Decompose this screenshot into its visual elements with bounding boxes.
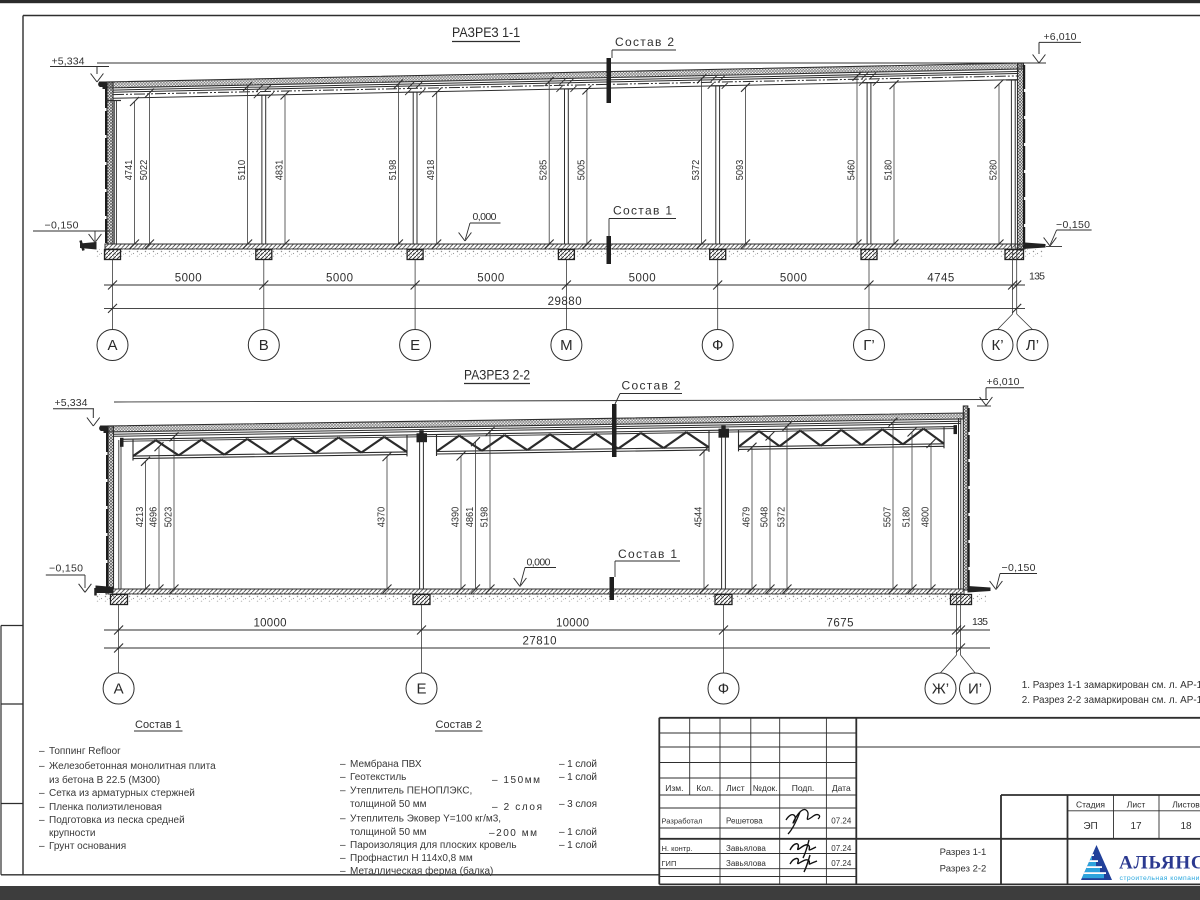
svg-text:– 1 слой: – 1 слой xyxy=(559,840,597,851)
svg-text:– 3 слоя: – 3 слоя xyxy=(559,799,597,810)
svg-text:Стадия: Стадия xyxy=(1076,800,1105,810)
svg-text:−0,150: −0,150 xyxy=(1056,219,1090,231)
svg-text:5180: 5180 xyxy=(902,506,913,527)
svg-text:5280: 5280 xyxy=(989,159,1000,180)
svg-text:5048: 5048 xyxy=(760,506,771,527)
svg-text:135: 135 xyxy=(972,616,988,628)
svg-text:А: А xyxy=(107,337,117,354)
svg-text:5198: 5198 xyxy=(480,506,491,527)
svg-text:4696: 4696 xyxy=(149,506,160,527)
svg-text:Подготовка из песка средней: Подготовка из песка средней xyxy=(49,815,185,826)
svg-text:№док.: №док. xyxy=(753,783,778,793)
svg-text:Состав 2: Состав 2 xyxy=(436,719,482,731)
svg-text:Ж’: Ж’ xyxy=(932,681,949,698)
svg-text:5022: 5022 xyxy=(139,159,150,180)
svg-text:Ф: Ф xyxy=(718,681,729,698)
svg-text:–: – xyxy=(340,866,346,877)
svg-text:–: – xyxy=(340,853,346,864)
svg-text:–: – xyxy=(340,814,346,825)
svg-text:5093: 5093 xyxy=(735,159,746,180)
svg-text:Сетка из арматурных стержней: Сетка из арматурных стержней xyxy=(49,788,195,799)
svg-text:–: – xyxy=(39,746,45,757)
svg-text:РАЗРЕЗ 2-2: РАЗРЕЗ 2-2 xyxy=(464,368,530,383)
svg-text:ГИП: ГИП xyxy=(662,859,677,868)
svg-text:Завьялова: Завьялова xyxy=(726,844,766,853)
svg-text:1. Разрез 1-1 замаркирован см.: 1. Разрез 1-1 замаркирован см. л. АР-19 xyxy=(1022,679,1200,691)
svg-text:АЛЬЯНС: АЛЬЯНС xyxy=(1119,853,1200,874)
svg-text:4679: 4679 xyxy=(742,506,753,527)
svg-text:18: 18 xyxy=(1180,821,1192,832)
svg-text:–: – xyxy=(340,759,346,770)
svg-text:4370: 4370 xyxy=(377,506,388,527)
svg-text:Е: Е xyxy=(410,337,420,354)
svg-text:5372: 5372 xyxy=(777,506,788,527)
svg-text:5507: 5507 xyxy=(883,506,894,527)
svg-text:135: 135 xyxy=(1029,271,1045,283)
svg-text:Состав 1: Состав 1 xyxy=(135,719,181,731)
svg-text:5180: 5180 xyxy=(884,159,895,180)
svg-text:4831: 4831 xyxy=(275,159,286,180)
svg-text:−0,150: −0,150 xyxy=(49,563,83,575)
svg-text:И’: И’ xyxy=(968,681,982,698)
svg-text:М: М xyxy=(560,337,573,354)
svg-text:5198: 5198 xyxy=(388,159,399,180)
svg-text:К’: К’ xyxy=(991,337,1003,354)
svg-text:В: В xyxy=(259,337,269,354)
svg-text:Кол.: Кол. xyxy=(696,783,713,793)
svg-text:5005: 5005 xyxy=(576,159,587,180)
svg-text:Геотекстиль: Геотекстиль xyxy=(350,772,406,783)
svg-text:Н. контр.: Н. контр. xyxy=(662,844,693,853)
svg-text:4918: 4918 xyxy=(426,159,437,180)
svg-text:– 1 слой: – 1 слой xyxy=(559,827,597,838)
svg-text:17: 17 xyxy=(1130,821,1142,832)
svg-text:Г’: Г’ xyxy=(863,337,874,354)
svg-text:Мембрана ПВХ: Мембрана ПВХ xyxy=(350,758,422,770)
svg-text:4544: 4544 xyxy=(694,506,705,527)
svg-text:4213: 4213 xyxy=(135,506,146,527)
svg-text:5285: 5285 xyxy=(539,159,550,180)
svg-text:5110: 5110 xyxy=(237,159,248,180)
svg-text:Завьялова: Завьялова xyxy=(726,859,766,868)
svg-text:Грунт основания: Грунт основания xyxy=(49,841,126,852)
svg-text:Профнастил Н 114х0,8 мм: Профнастил Н 114х0,8 мм xyxy=(350,852,473,864)
svg-text:4390: 4390 xyxy=(451,506,462,527)
svg-text:Пароизоляция для плоских крове: Пароизоляция для плоских кровель xyxy=(350,840,517,851)
svg-text:4745: 4745 xyxy=(927,273,954,285)
svg-text:ЭП: ЭП xyxy=(1083,821,1097,832)
svg-text:–: – xyxy=(340,772,346,783)
svg-text:+5,334: +5,334 xyxy=(55,397,88,409)
svg-text:5372: 5372 xyxy=(691,159,702,180)
svg-text:Разработал: Разработал xyxy=(662,817,703,826)
svg-text:Топпинг Refloor: Топпинг Refloor xyxy=(49,746,121,757)
svg-text:4861: 4861 xyxy=(465,506,476,527)
svg-text:5000: 5000 xyxy=(175,273,202,285)
svg-text:крупности: крупности xyxy=(49,828,96,839)
svg-text:0,000: 0,000 xyxy=(473,211,497,223)
svg-text:– 150мм: – 150мм xyxy=(492,775,540,786)
svg-text:–: – xyxy=(39,815,45,826)
svg-text:– 1 слой: – 1 слой xyxy=(559,759,597,770)
svg-text:– 1 слой: – 1 слой xyxy=(559,772,597,783)
svg-text:5000: 5000 xyxy=(780,273,807,285)
svg-text:Решетова: Решетова xyxy=(726,817,763,826)
svg-text:строительная компания: строительная компания xyxy=(1120,875,1200,882)
svg-text:–: – xyxy=(340,786,346,797)
svg-text:Подп.: Подп. xyxy=(792,783,815,793)
svg-text:Л’: Л’ xyxy=(1026,337,1039,354)
svg-text:Железобетонная монолитная пли: Железобетонная монолитная плита xyxy=(49,760,216,772)
svg-text:0,000: 0,000 xyxy=(527,557,551,569)
svg-text:Дата: Дата xyxy=(832,783,851,793)
svg-text:Листов: Листов xyxy=(1172,800,1200,810)
svg-text:07.24: 07.24 xyxy=(831,844,852,853)
svg-text:5000: 5000 xyxy=(629,273,656,285)
svg-text:5000: 5000 xyxy=(326,273,353,285)
svg-text:–: – xyxy=(39,761,45,772)
svg-text:– 2 слоя: – 2 слоя xyxy=(492,802,542,813)
svg-text:−0,150: −0,150 xyxy=(1002,562,1036,574)
svg-text:Разрез 1-1: Разрез 1-1 xyxy=(940,847,987,858)
svg-text:толщиной 50 мм: толщиной 50 мм xyxy=(350,799,427,810)
svg-text:5000: 5000 xyxy=(477,273,504,285)
svg-text:5460: 5460 xyxy=(847,159,858,180)
svg-text:+6,010: +6,010 xyxy=(1044,31,1077,43)
svg-text:−0,150: −0,150 xyxy=(45,220,79,232)
svg-text:Е: Е xyxy=(416,681,426,698)
svg-text:07.24: 07.24 xyxy=(831,817,852,826)
svg-text:+6,010: +6,010 xyxy=(987,376,1020,388)
svg-text:–200 мм: –200 мм xyxy=(489,828,537,839)
svg-text:5023: 5023 xyxy=(164,506,175,527)
svg-text:толщиной 50 мм: толщиной 50 мм xyxy=(350,827,427,838)
svg-text:27810: 27810 xyxy=(523,636,557,648)
svg-text:10000: 10000 xyxy=(254,618,287,630)
svg-text:29880: 29880 xyxy=(548,296,582,308)
svg-text:РАЗРЕЗ 1-1: РАЗРЕЗ 1-1 xyxy=(452,25,520,40)
svg-text:07.24: 07.24 xyxy=(831,859,852,868)
svg-text:Пленка полиэтиленовая: Пленка полиэтиленовая xyxy=(49,802,162,813)
svg-text:10000: 10000 xyxy=(556,618,589,630)
svg-text:4800: 4800 xyxy=(921,506,932,527)
svg-text:Утеплитель ПЕНОПЛЭКС,: Утеплитель ПЕНОПЛЭКС, xyxy=(350,786,472,797)
svg-text:Ф: Ф xyxy=(712,337,723,354)
svg-text:Лист: Лист xyxy=(726,783,745,793)
svg-text:–: – xyxy=(39,802,45,813)
svg-text:+5,334: +5,334 xyxy=(52,56,85,68)
svg-text:из бетона В 22.5 (М300): из бетона В 22.5 (М300) xyxy=(49,774,160,786)
svg-text:–: – xyxy=(39,841,45,852)
svg-text:–: – xyxy=(39,788,45,799)
svg-text:А: А xyxy=(114,681,124,698)
svg-text:7675: 7675 xyxy=(827,618,854,630)
svg-text:Утеплитель Эковер Y=100 кг/м3,: Утеплитель Эковер Y=100 кг/м3, xyxy=(350,814,501,825)
svg-text:Металлическая ферма (балка): Металлическая ферма (балка) xyxy=(350,865,493,877)
svg-text:2. Разрез 2-2 замаркирован см.: 2. Разрез 2-2 замаркирован см. л. АР-19 xyxy=(1022,694,1200,706)
svg-text:–: – xyxy=(340,840,346,851)
svg-text:4741: 4741 xyxy=(124,159,135,180)
svg-text:Изм.: Изм. xyxy=(665,783,683,793)
svg-text:Лист: Лист xyxy=(1127,800,1146,810)
svg-text:Разрез 2-2: Разрез 2-2 xyxy=(940,864,987,875)
